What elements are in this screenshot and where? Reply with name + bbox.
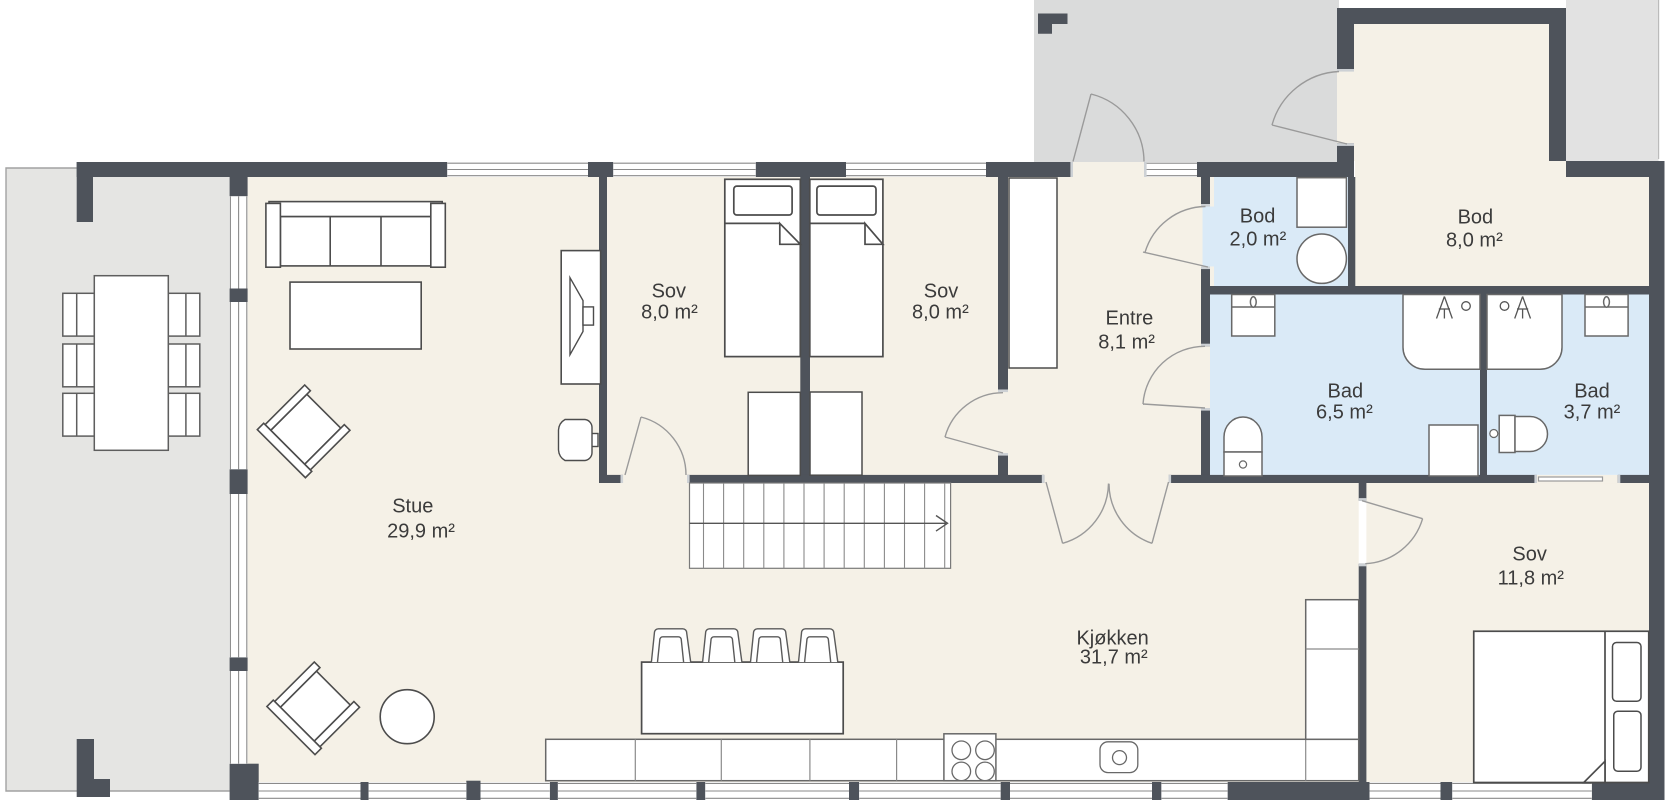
svg-text:29,9 m²: 29,9 m² [387, 521, 455, 543]
svg-text:8,1 m²: 8,1 m² [1098, 332, 1155, 354]
svg-text:11,8 m²: 11,8 m² [1498, 568, 1565, 590]
svg-text:Bod: Bod [1458, 207, 1494, 229]
svg-text:Sov: Sov [924, 281, 958, 303]
svg-text:8,0 m²: 8,0 m² [912, 302, 969, 324]
svg-text:Bod: Bod [1240, 206, 1276, 228]
svg-text:Bad: Bad [1574, 381, 1610, 403]
svg-text:2,0 m²: 2,0 m² [1230, 229, 1287, 251]
svg-text:Stue: Stue [392, 496, 433, 518]
svg-text:3,7 m²: 3,7 m² [1564, 402, 1621, 424]
svg-text:31,7 m²: 31,7 m² [1080, 647, 1148, 669]
svg-text:6,5 m²: 6,5 m² [1316, 402, 1373, 424]
svg-text:Sov: Sov [1512, 544, 1546, 566]
svg-text:Entre: Entre [1105, 308, 1153, 330]
svg-text:8,0 m²: 8,0 m² [641, 302, 698, 324]
svg-text:Bad: Bad [1328, 381, 1364, 403]
svg-text:Sov: Sov [652, 281, 686, 303]
svg-text:8,0 m²: 8,0 m² [1446, 230, 1503, 252]
